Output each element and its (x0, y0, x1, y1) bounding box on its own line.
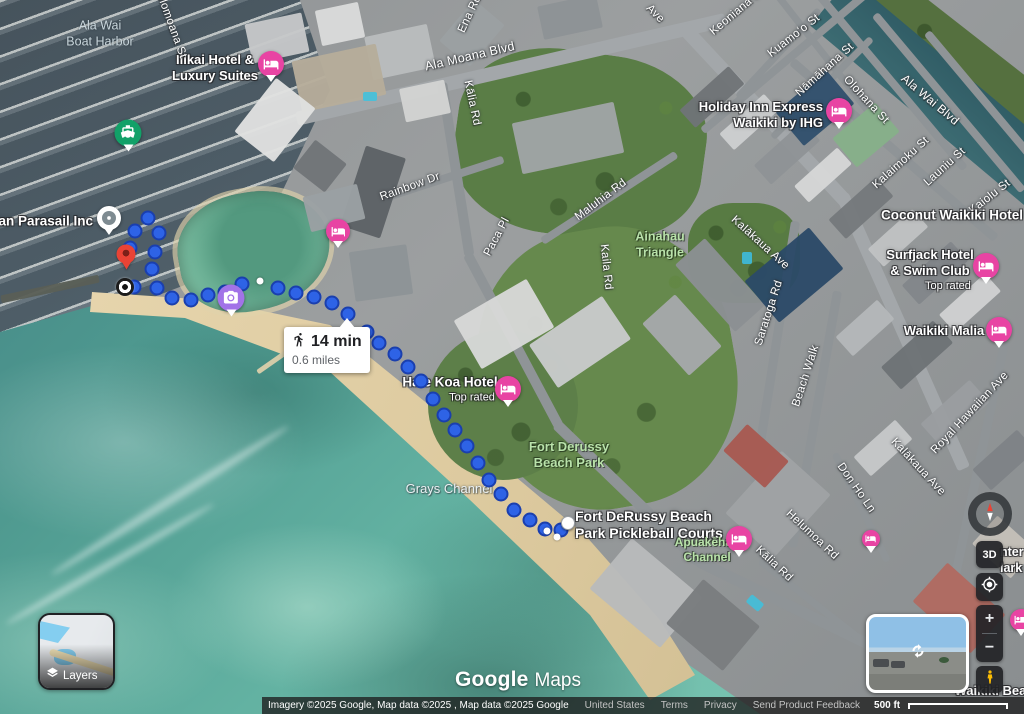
route-dot[interactable] (448, 423, 463, 438)
route-dot[interactable] (437, 408, 452, 423)
my-location-button[interactable] (976, 573, 1003, 601)
google-maps-watermark: Google Maps (455, 668, 581, 692)
label-fort-derussy-park: Fort DerussyBeach Park (529, 439, 609, 472)
route-dot[interactable] (471, 456, 486, 471)
layers-icon (46, 666, 59, 682)
scale-bar (908, 703, 1008, 709)
route-dot[interactable] (271, 281, 286, 296)
route-dot[interactable] (165, 291, 180, 306)
label-surfjack[interactable]: Surfjack Hotel& Swim Club Top rated (886, 247, 973, 293)
car-shape (891, 661, 905, 668)
google-logo: Google (455, 668, 529, 692)
apuakehau-hotel-pin[interactable] (726, 526, 752, 552)
zoom-control: + − (976, 605, 1003, 662)
route-dot[interactable] (128, 224, 143, 239)
route-dot[interactable] (482, 473, 497, 488)
my-location-icon (981, 576, 998, 598)
route-waypoint-dot (257, 278, 264, 285)
route-end-marker[interactable] (561, 516, 575, 530)
waikiki-malia-pin[interactable] (986, 317, 1012, 343)
hale-koa-hotel-pin[interactable] (495, 376, 521, 402)
street-view-preview[interactable] (866, 614, 969, 693)
photo-spot-pin[interactable] (218, 285, 245, 312)
holiday-inn-pin[interactable] (826, 98, 852, 124)
feedback-link[interactable]: Send Product Feedback (753, 700, 860, 711)
route-dot[interactable] (150, 281, 165, 296)
surfjack-hotel-pin[interactable] (973, 253, 999, 279)
zoom-in-button[interactable]: + (976, 605, 1003, 633)
zoom-out-button[interactable]: − (976, 634, 1003, 662)
car-shape (873, 659, 889, 667)
attribution-bar: Imagery ©2025 Google, Map data ©2025 , M… (262, 697, 1024, 714)
route-duration: 14 min (311, 333, 362, 351)
label-clipped-poi-line1: nter (1000, 545, 1024, 559)
route-dot[interactable] (414, 374, 429, 389)
ilikai-hotel-pin[interactable] (258, 51, 284, 77)
terms-link[interactable]: Terms (661, 700, 688, 711)
label-waikiki-malia[interactable]: Waikiki Malia (904, 323, 984, 339)
route-dot[interactable] (148, 245, 163, 260)
route-dot[interactable] (201, 288, 216, 303)
hawaiian-parasail-pin[interactable] (97, 206, 121, 230)
label-holiday-inn[interactable]: Holiday Inn ExpressWaikiki by IHG (699, 99, 823, 132)
country-label: United States (585, 700, 645, 711)
route-dot[interactable] (372, 336, 387, 351)
pegman-button[interactable] (976, 666, 1003, 693)
boat-tours-pin[interactable] (115, 120, 142, 147)
route-waypoint-dot (554, 534, 561, 541)
compass-control[interactable] (968, 492, 1012, 536)
route-dot[interactable] (401, 360, 416, 375)
route-dot[interactable] (494, 487, 509, 502)
imagery-attribution: Imagery ©2025 Google, Map data ©2025 , M… (268, 700, 569, 711)
rotate-view-icon (907, 640, 929, 662)
label-hawaiian-parasail[interactable]: Hawaiian Parasail Inc (0, 214, 93, 231)
pegman-icon (982, 669, 998, 690)
route-dot[interactable] (325, 296, 340, 311)
route-dot[interactable] (141, 211, 156, 226)
label-grays-channel: Grays Channel (406, 481, 493, 497)
route-start-marker[interactable] (116, 278, 134, 296)
route-dot[interactable] (289, 286, 304, 301)
route-duration-tooltip[interactable]: 14 min 0.6 miles (284, 327, 370, 373)
route-dot[interactable] (307, 290, 322, 305)
small-hotel-pin[interactable] (862, 530, 880, 548)
compass-needle-icon (979, 501, 1001, 528)
route-waypoint-dot (544, 528, 551, 535)
palm-shape (939, 657, 949, 663)
label-clipped-poi-line2: lark (1000, 561, 1022, 575)
route-dot[interactable] (152, 226, 167, 241)
route-dot[interactable] (184, 293, 199, 308)
layers-label: Layers (63, 670, 98, 682)
privacy-link[interactable]: Privacy (704, 700, 737, 711)
route-dot[interactable] (507, 503, 522, 518)
label-coconut-waikiki[interactable]: Coconut Waikiki Hotel (881, 208, 1023, 225)
route-dot[interactable] (523, 513, 538, 528)
label-ainahau-triangle: AinahauTriangle (635, 229, 684, 260)
label-ala-wai-boat-harbor: Ala WaiBoat Harbor (66, 18, 133, 49)
map-canvas[interactable]: Ala WaiBoat Harbor Ilikai Hotel &Luxury … (0, 0, 1024, 714)
route-dot[interactable] (460, 439, 475, 454)
scale-label[interactable]: 500 ft (874, 700, 900, 711)
route-dot[interactable] (145, 262, 160, 277)
layers-button[interactable]: Layers (38, 613, 115, 690)
3d-view-button[interactable]: 3D (976, 541, 1003, 568)
route-distance: 0.6 miles (292, 353, 362, 367)
walking-icon (292, 332, 307, 352)
route-dot[interactable] (426, 392, 441, 407)
route-start-pin[interactable] (117, 245, 136, 264)
route-dot[interactable] (388, 347, 403, 362)
lagoon-hotel-pin[interactable] (326, 219, 350, 243)
